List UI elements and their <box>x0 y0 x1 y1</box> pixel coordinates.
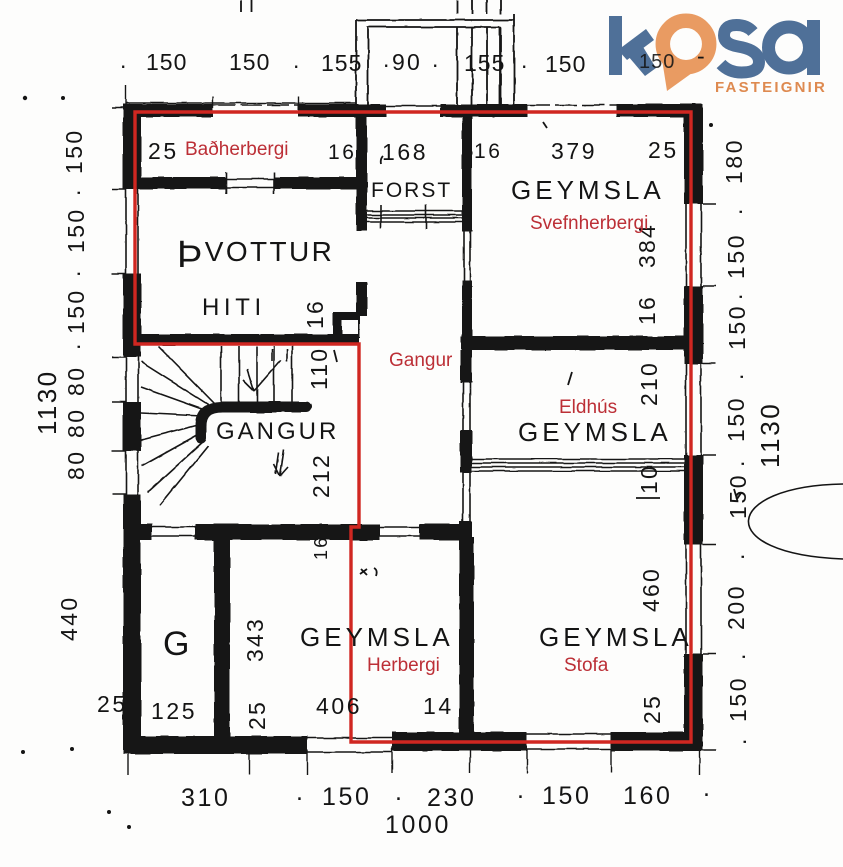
svg-text:.: . <box>721 206 747 215</box>
svg-text:.: . <box>722 371 748 380</box>
svg-text:379: 379 <box>551 138 597 164</box>
svg-text:460: 460 <box>638 567 664 612</box>
svg-text:-: - <box>697 43 707 69</box>
svg-text:1130: 1130 <box>32 369 62 435</box>
svg-text:150: 150 <box>723 396 749 442</box>
svg-text:GANGUR: GANGUR <box>216 418 339 445</box>
svg-text:155: 155 <box>321 50 362 76</box>
svg-text:FORST: FORST <box>371 179 452 202</box>
svg-text:GEYMSLA: GEYMSLA <box>300 622 454 652</box>
svg-text:.: . <box>59 341 85 350</box>
svg-text:440: 440 <box>56 595 82 641</box>
svg-text:Stofa: Stofa <box>564 655 609 676</box>
svg-text:.: . <box>432 46 441 72</box>
svg-text:G: G <box>163 625 189 663</box>
svg-text:25: 25 <box>648 137 679 163</box>
svg-text:10: 10 <box>636 464 662 494</box>
svg-text:.: . <box>725 736 751 745</box>
svg-text:210: 210 <box>636 361 662 406</box>
svg-text:GEYMSLA: GEYMSLA <box>511 175 665 205</box>
svg-text:90: 90 <box>392 49 422 75</box>
svg-text:150: 150 <box>723 233 749 279</box>
svg-text:150: 150 <box>639 51 675 73</box>
svg-text:.: . <box>721 291 747 300</box>
svg-text:Svefnherbergi: Svefnherbergi <box>530 213 648 234</box>
svg-text:.: . <box>723 458 749 467</box>
svg-text:150: 150 <box>545 51 586 77</box>
svg-text:150: 150 <box>63 288 89 334</box>
svg-text:25: 25 <box>639 694 665 724</box>
svg-text:25: 25 <box>148 138 179 164</box>
svg-text:.: . <box>703 774 713 802</box>
svg-text:16: 16 <box>311 536 331 560</box>
svg-text:.: . <box>293 47 302 73</box>
svg-text:.: . <box>59 268 85 277</box>
svg-text:HITI: HITI <box>202 294 266 321</box>
svg-text:168: 168 <box>382 139 428 165</box>
svg-text:.: . <box>517 776 527 804</box>
svg-text:GEYMSLA: GEYMSLA <box>539 622 693 652</box>
svg-text:80: 80 <box>63 450 89 480</box>
svg-text:310: 310 <box>181 784 231 812</box>
svg-text:200: 200 <box>723 584 749 630</box>
svg-text:180: 180 <box>721 138 747 184</box>
svg-text:150: 150 <box>146 49 187 75</box>
svg-text:80: 80 <box>63 408 89 438</box>
svg-text:16: 16 <box>474 140 503 163</box>
svg-text:230: 230 <box>427 784 477 812</box>
svg-text:FASTEIGNIR: FASTEIGNIR <box>715 79 827 96</box>
svg-text:150: 150 <box>61 128 87 174</box>
svg-text:1130: 1130 <box>755 402 785 468</box>
svg-text:Baðherbergi: Baðherbergi <box>185 139 289 160</box>
svg-text:16: 16 <box>328 141 357 164</box>
svg-text:16: 16 <box>302 299 328 329</box>
svg-text:343: 343 <box>242 617 268 662</box>
svg-text:Herbergi: Herbergi <box>367 655 440 676</box>
svg-text:1000: 1000 <box>385 811 451 839</box>
svg-text:Eldhús: Eldhús <box>559 397 617 418</box>
svg-text:.: . <box>521 47 530 73</box>
svg-text:.: . <box>723 551 749 560</box>
svg-text:150: 150 <box>725 676 751 722</box>
svg-text:150: 150 <box>725 473 751 519</box>
svg-text:406: 406 <box>316 693 362 719</box>
svg-text:150: 150 <box>724 304 750 350</box>
svg-text:212: 212 <box>308 453 334 498</box>
svg-text:.: . <box>395 778 405 806</box>
svg-text:150: 150 <box>229 49 270 75</box>
svg-text:150: 150 <box>63 207 89 253</box>
svg-text:.: . <box>296 778 306 806</box>
svg-text:80: 80 <box>63 366 89 396</box>
svg-text:25: 25 <box>244 700 270 730</box>
svg-text:14: 14 <box>423 693 454 719</box>
svg-text:Gangur: Gangur <box>389 350 453 371</box>
svg-text:160: 160 <box>623 782 673 810</box>
svg-text:150: 150 <box>322 783 372 811</box>
svg-text:16: 16 <box>634 295 660 325</box>
svg-text:110: 110 <box>306 347 332 390</box>
svg-text:GEYMSLA: GEYMSLA <box>518 417 672 447</box>
svg-text:150: 150 <box>542 782 592 810</box>
svg-text:.: . <box>120 47 129 73</box>
svg-text:125: 125 <box>151 698 197 724</box>
svg-text:155: 155 <box>464 50 505 76</box>
svg-text:.: . <box>383 46 392 72</box>
svg-text:25: 25 <box>97 691 128 717</box>
svg-text:.: . <box>724 651 750 660</box>
svg-text:.: . <box>59 187 85 196</box>
